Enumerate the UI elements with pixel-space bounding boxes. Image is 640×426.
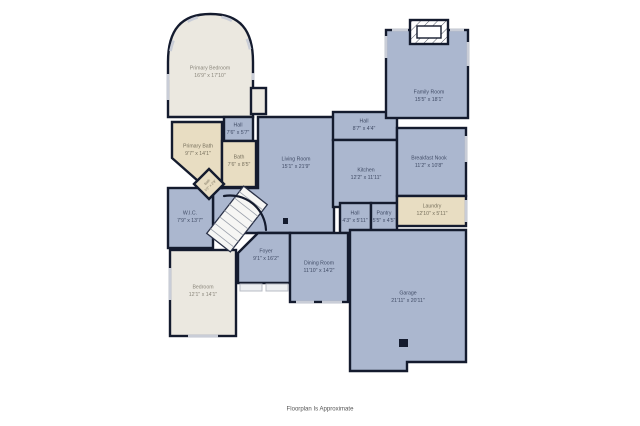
room-dims: 9'1" x 16'2" [253,255,279,262]
room-name: Primary Bath [183,143,213,150]
room-name: Dining Room [304,260,334,267]
room-name: Foyer [259,248,272,255]
room-name: Kitchen [357,167,374,174]
room-dims: 21'11" x 20'11" [391,297,425,304]
room-label-breakfast-nook: Breakfast Nook 11'2" x 10'8" [411,155,447,169]
room-name: Hall [234,122,243,129]
room-label-pantry: Pantry 5'5" x 4'5" [373,210,396,224]
room-dims: 16'9" x 17'10" [194,72,225,79]
room-name: Laundry [423,203,442,210]
room-label-hall-center: Hall 4'3" x 5'11" [342,210,367,224]
room-name: Garage [399,290,416,297]
fireplace [410,20,448,44]
room-name: Hall [351,210,360,217]
room-name: Bath [234,154,245,161]
room-label-wic: W.I.C. 7'9" x 13'7" [177,210,203,224]
room-label-dining-room: Dining Room 11'10" x 14'2" [303,260,334,274]
room-dims: 12'2" x 11'11" [351,174,382,181]
room-label-bedroom: Bedroom 12'1" x 14'1" [189,284,218,298]
room-name: Hall [360,118,369,125]
room-name: W.I.C. [183,210,197,217]
room-dims: 8'7" x 4'4" [353,125,376,132]
room-name: Living Room [282,156,311,163]
room-dims: 5'5" x 4'5" [373,217,396,224]
room-label-laundry: Laundry 12'10" x 5'11" [416,203,447,217]
room-shape-primary-bedroom-notch [251,88,266,114]
floorplan-canvas: Primary Bedroom 16'9" x 17'10" Family Ro… [0,0,640,426]
room-dims: 15'1" x 21'9" [282,163,311,170]
room-label-primary-bedroom: Primary Bedroom 16'9" x 17'10" [190,65,230,79]
room-dims: 7'9" x 13'7" [177,217,203,224]
room-dims: 15'5" x 18'1" [415,96,444,103]
room-dims: 4'3" x 5'11" [342,217,367,224]
room-dims: 11'10" x 14'2" [303,267,334,274]
room-label-family-room: Family Room 15'5" x 18'1" [414,89,445,103]
room-dims: 12'1" x 14'1" [189,291,218,298]
room-label-garage: Garage 21'11" x 20'11" [391,290,425,304]
room-label-hall-family: Hall 8'7" x 4'4" [353,118,376,132]
room-dims: 12'10" x 5'11" [416,210,447,217]
room-label-living-room: Living Room 15'1" x 21'9" [282,156,311,170]
room-dims: 7'6" x 8'5" [228,161,251,168]
room-name: Bedroom [192,284,213,291]
room-name: Primary Bedroom [190,65,230,72]
room-label-kitchen: Kitchen 12'2" x 11'11" [351,167,382,181]
porch-steps [240,284,288,291]
room-label-bath: Bath 7'6" x 8'5" [228,154,251,168]
room-dims: 7'6" x 5'7" [227,129,250,136]
room-name: Family Room [414,89,445,96]
room-dims: 11'2" x 10'8" [415,162,443,169]
room-label-foyer: Foyer 9'1" x 16'2" [253,248,279,262]
room-name: Breakfast Nook [411,155,447,162]
room-name: Pantry [376,210,391,217]
floorplan-disclaimer: Floorplan Is Approximate [287,406,354,413]
room-label-hall-upper: Hall 7'6" x 5'7" [227,122,250,136]
floorplan-drawing [0,0,640,426]
room-label-primary-bath: Primary Bath 9'7" x 14'1" [183,143,213,157]
room-dims: 9'7" x 14'1" [185,150,211,157]
